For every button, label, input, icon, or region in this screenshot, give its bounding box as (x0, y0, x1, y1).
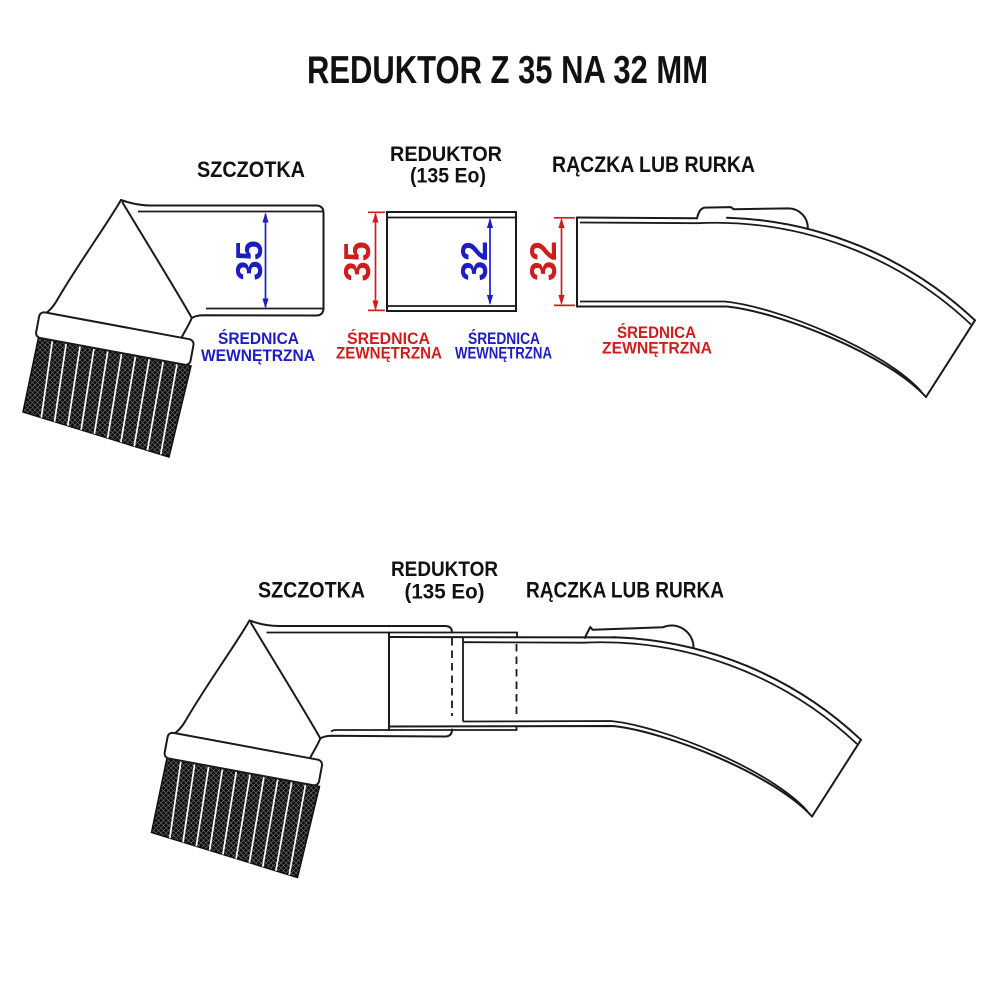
svg-text:32: 32 (454, 241, 495, 281)
svg-text:ZEWNĘTRZNA: ZEWNĘTRZNA (336, 344, 442, 363)
svg-text:35: 35 (337, 242, 378, 282)
svg-text:(135 Eo): (135 Eo) (410, 165, 486, 188)
svg-text:REDUKTOR: REDUKTOR (390, 143, 502, 166)
svg-text:ZEWNĘTRZNA: ZEWNĘTRZNA (602, 339, 712, 358)
svg-text:WEWNĘTRZNA: WEWNĘTRZNA (455, 344, 552, 363)
svg-text:(135 Eo): (135 Eo) (405, 581, 485, 604)
svg-text:35: 35 (229, 241, 270, 281)
svg-text:RĄCZKA LUB RURKA: RĄCZKA LUB RURKA (526, 578, 724, 603)
svg-text:RĄCZKA LUB RURKA: RĄCZKA LUB RURKA (552, 152, 755, 177)
svg-text:SZCZOTKA: SZCZOTKA (197, 157, 305, 182)
svg-text:32: 32 (523, 241, 564, 281)
svg-text:REDUKTOR Z 35 NA 32 MM: REDUKTOR Z 35 NA 32 MM (307, 49, 708, 92)
svg-text:SZCZOTKA: SZCZOTKA (258, 578, 365, 603)
svg-text:REDUKTOR: REDUKTOR (391, 558, 498, 581)
svg-text:WEWNĘTRZNA: WEWNĘTRZNA (201, 346, 315, 365)
